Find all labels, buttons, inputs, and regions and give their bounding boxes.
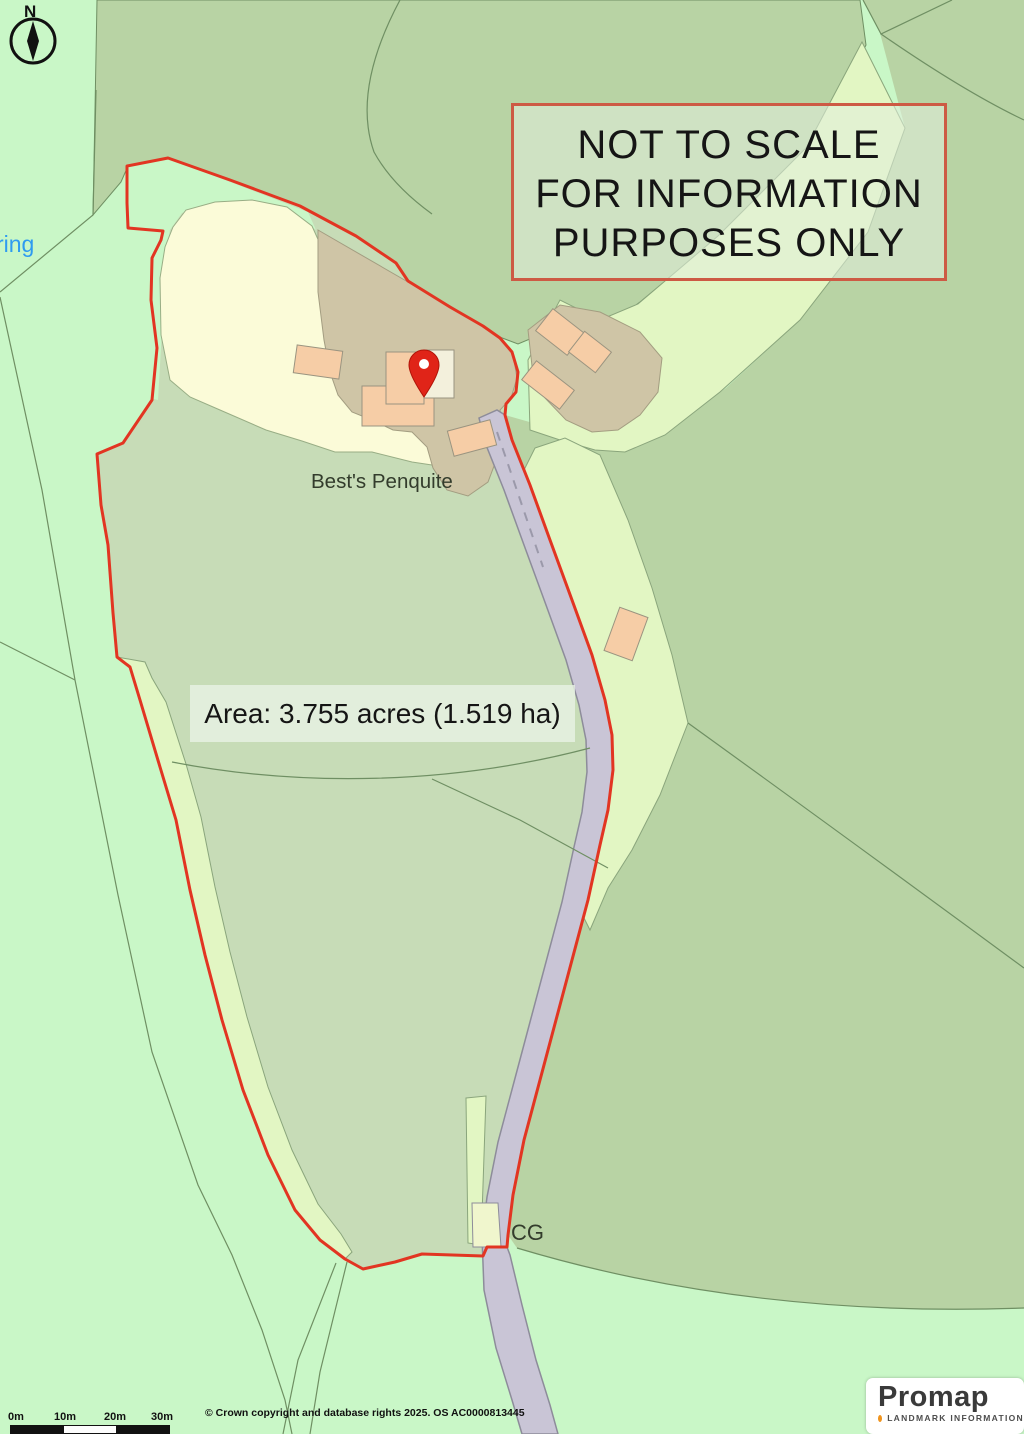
scale-tick: 30m bbox=[151, 1411, 173, 1423]
not-to-scale-notice: NOT TO SCALE FOR INFORMATION PURPOSES ON… bbox=[511, 103, 947, 281]
scale-tick: 0m bbox=[8, 1411, 24, 1423]
building bbox=[293, 345, 342, 379]
notice-line: NOT TO SCALE bbox=[514, 121, 944, 170]
notice-line: PURPOSES ONLY bbox=[514, 219, 944, 268]
scale-segment bbox=[116, 1426, 169, 1433]
area-label: Area: 3.755 acres (1.519 ha) bbox=[204, 698, 560, 729]
scale-segment bbox=[64, 1426, 117, 1433]
promap-brand-text: Promap bbox=[878, 1382, 1024, 1412]
compass-north-label: N bbox=[24, 2, 36, 22]
cg-enclosure bbox=[472, 1203, 501, 1247]
scale-tick: 10m bbox=[54, 1411, 76, 1423]
property-name-label: Best's Penquite bbox=[311, 470, 453, 494]
copyright-attribution: © Crown copyright and database rights 20… bbox=[205, 1407, 525, 1419]
area-label-panel: Area: 3.755 acres (1.519 ha) bbox=[190, 685, 575, 742]
scale-bar-segments bbox=[10, 1425, 170, 1434]
road-name-label: ring bbox=[0, 231, 34, 258]
landmark-tagline: LANDMARK INFORMATION bbox=[887, 1413, 1024, 1423]
scale-tick: 20m bbox=[104, 1411, 126, 1423]
landmark-dot-icon bbox=[878, 1415, 882, 1422]
scale-segment bbox=[11, 1426, 64, 1433]
map-screenshot: N ring NOT TO SCALE FOR INFORMATION PURP… bbox=[0, 0, 1024, 1434]
notice-line: FOR INFORMATION bbox=[514, 170, 944, 219]
promap-logo: Promap LANDMARK INFORMATION bbox=[866, 1378, 1024, 1434]
cg-label: CG bbox=[511, 1220, 544, 1246]
